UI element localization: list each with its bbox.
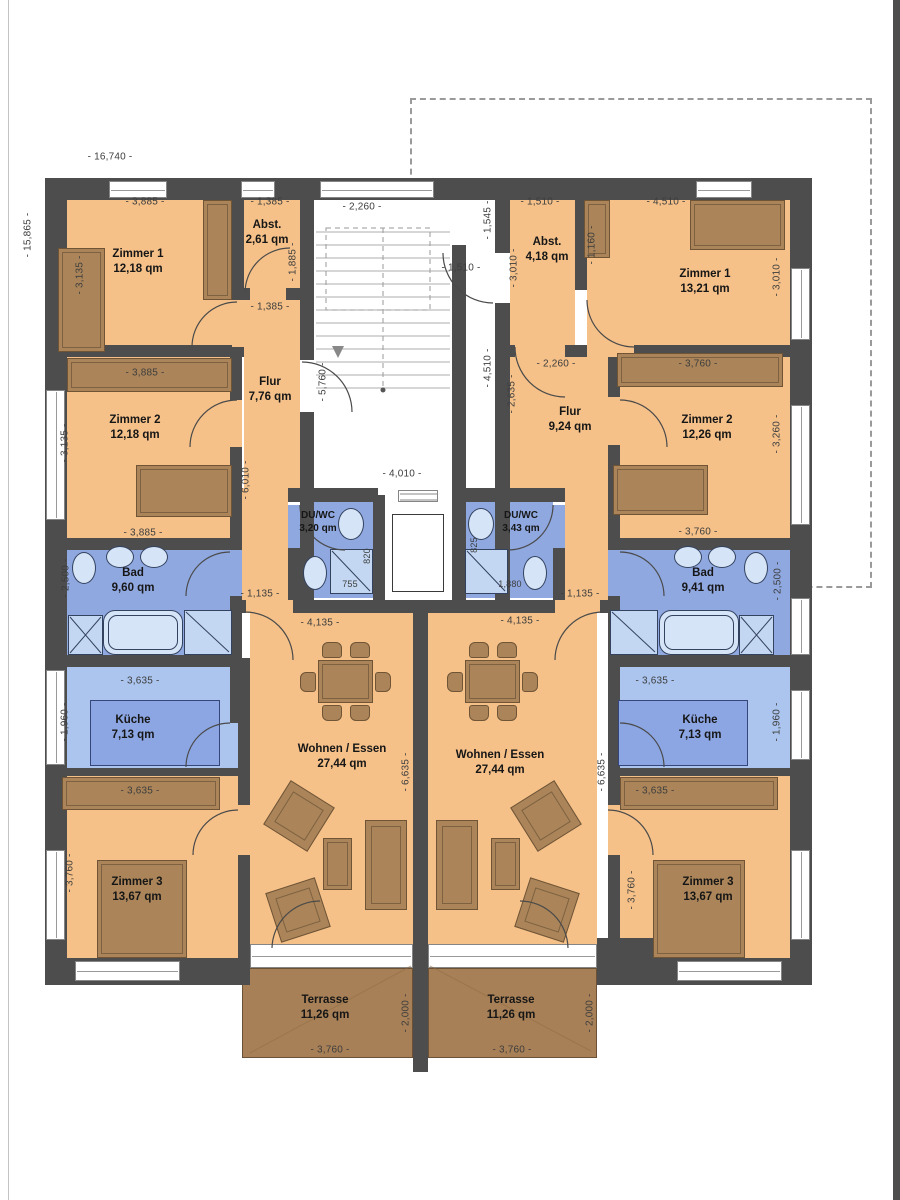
dim-overall-width: - 16,740 - [88,152,133,163]
terrace-door-window [250,944,413,968]
dim: - 1,960 - [60,702,71,741]
dim: - 2,500 - [61,558,72,597]
room-name: Zimmer 2 [109,413,160,428]
dim: - 3,760 - [65,853,76,892]
floor-flur-left-lower [242,488,288,600]
floor-abst-right [510,200,575,345]
wall [620,768,790,776]
door-opening [608,397,620,445]
dining-table [465,660,520,703]
room-name: Terrasse [301,993,350,1008]
room-label-zimmer2-right: Zimmer 212,26 qm [681,413,732,443]
wall [565,345,587,357]
chair [497,642,517,658]
room-area: 11,26 qm [487,1008,536,1023]
room-label-duwc-right: DU/WC3,43 qm [502,509,539,535]
floor-plan-canvas: Zimmer 112,18 qm Abst.2,61 qm Flur7,76 q… [0,0,900,1200]
room-label-terrasse-left: Terrasse11,26 qm [301,993,350,1023]
window [696,181,752,198]
sink [708,546,736,568]
toilet [523,556,547,590]
dim: - 3,885 - [123,528,162,539]
dim: - 6,635 - [401,752,412,791]
dim: - 1,135 - [560,589,599,600]
dim: - 1,385 - [250,302,289,313]
chair [322,642,342,658]
door-opening [230,400,242,447]
room-name: Zimmer 2 [681,413,732,428]
room-area: 27,44 qm [298,757,387,772]
dim: 820 [362,548,372,564]
page-edge-left [8,0,9,1200]
dim-overall-height: - 15,865 - [23,213,34,258]
sofa [436,820,478,910]
room-label-duwc-left: DU/WC3,20 qm [299,509,336,535]
dim: - 4,510 - [646,197,685,208]
dim: - 3,885 - [125,197,164,208]
dim: - 1,960 - [772,702,783,741]
page-edge-right [893,0,900,1200]
sink [106,546,134,568]
wall [293,600,555,613]
window [791,268,810,340]
bed [613,465,708,515]
dim: - 3,760 - [627,870,638,909]
room-label-wohnen-left: Wohnen / Essen27,44 qm [298,742,387,772]
chair [469,642,489,658]
chair [350,642,370,658]
room-area: 13,21 qm [679,282,730,297]
room-name: Bad [112,566,155,581]
chair [522,672,538,692]
room-area: 11,26 qm [301,1008,350,1023]
dim: - 3,010 - [509,248,520,287]
chair [300,672,316,692]
sink [338,508,364,540]
room-name: Abst. [246,218,289,233]
door-opening [288,505,300,548]
room-label-flur-left: Flur7,76 qm [249,375,292,405]
room-name: Zimmer 3 [682,875,733,890]
room-label-terrasse-right: Terrasse11,26 qm [487,993,536,1023]
floor-opening [553,600,600,613]
washing-machine [739,615,774,655]
room-name: Terrasse [487,993,536,1008]
window [791,598,810,655]
dim: - 1,135 - [240,589,279,600]
room-name: DU/WC [299,509,336,522]
chair [350,705,370,721]
room-area: 4,18 qm [526,250,569,265]
wardrobe [203,200,232,300]
dim: - 3,635 - [635,676,674,687]
room-label-zimmer2-left: Zimmer 212,18 qm [109,413,160,443]
dim-stair: - 4,010 - [382,469,421,480]
room-name: Zimmer 3 [111,875,162,890]
wall [608,855,620,940]
room-name: Bad [682,566,725,581]
dim: - 2,635 - [507,374,518,413]
dim: - 3,635 - [120,676,159,687]
dim: 1,880 [498,579,522,589]
chair [447,672,463,692]
wall [238,855,250,940]
dim: - 3,760 - [310,1045,349,1056]
wall [608,538,790,550]
dim: - 3,135 - [60,423,71,462]
sink [468,508,494,540]
dim: - 3,885 - [125,368,164,379]
room-name: Zimmer 1 [679,267,730,282]
room-area: 7,13 qm [112,728,155,743]
wall-elevator [373,495,385,600]
dim: - 6,635 - [597,752,608,791]
dim-stair: - 1,545 - [483,200,494,239]
dim-stair: - 5,760 - [318,362,329,401]
wall-duwc [288,488,378,502]
dim: - 2,000 - [401,993,412,1032]
room-name: Wohnen / Essen [298,742,387,757]
room-label-zimmer1-left: Zimmer 112,18 qm [112,247,163,277]
wall-elevator [453,495,465,600]
window [109,181,167,198]
wall [230,667,242,723]
window [677,961,782,981]
dim: - 3,635 - [120,786,159,797]
bed [690,200,785,250]
room-name: Küche [679,713,722,728]
room-name: Zimmer 1 [112,247,163,262]
room-area: 12,26 qm [681,428,732,443]
room-area: 27,44 qm [456,763,545,778]
dim: 755 [342,579,358,589]
dim: - 4,135 - [500,616,539,627]
sofa [365,820,407,910]
elevator-car [392,514,444,592]
window [46,850,65,940]
room-name: Abst. [526,235,569,250]
room-area: 9,24 qm [549,420,592,435]
window [791,405,810,525]
chair [322,705,342,721]
room-name: Wohnen / Essen [456,748,545,763]
wall-duwc [288,548,300,600]
chair [497,705,517,721]
room-label-kueche-left: Küche7,13 qm [112,713,155,743]
room-area: 12,18 qm [109,428,160,443]
dim: - 3,760 - [492,1045,531,1056]
dim-stair: - 4,510 - [483,348,494,387]
dim: - 4,135 - [300,618,339,629]
dim-stair: - 2,260 - [342,202,381,213]
room-label-zimmer3-right: Zimmer 313,67 qm [682,875,733,905]
wall [597,938,660,962]
room-area: 13,67 qm [682,890,733,905]
wall [510,345,515,357]
dim: - 6,010 - [241,460,252,499]
bathtub [659,610,739,655]
dim: 825 [469,537,479,553]
dim: - 3,635 - [635,786,674,797]
room-area: 7,13 qm [679,728,722,743]
window [241,181,275,198]
terrace-door-window [428,944,597,968]
room-area: 13,67 qm [111,890,162,905]
toilet [744,552,768,584]
coffee-table [491,838,520,890]
wall-duwc [455,488,565,502]
room-label-zimmer3-left: Zimmer 313,67 qm [111,875,162,905]
dim: - 1,385 - [250,197,289,208]
wall [286,288,302,300]
room-label-abst-right: Abst.4,18 qm [526,235,569,265]
washing-machine [68,615,103,655]
wall [232,347,244,357]
window [75,961,180,981]
room-label-flur-right: Flur9,24 qm [549,405,592,435]
dim: - 3,260 - [772,414,783,453]
elevator-door [398,490,438,502]
chair [375,672,391,692]
dim: - 3,760 - [678,527,717,538]
room-area: 2,61 qm [246,233,289,248]
door-opening [608,805,620,855]
kitchen-unit [90,700,220,766]
room-area: 9,60 qm [112,581,155,596]
wall [495,200,510,253]
toilet [303,556,327,590]
room-label-bad-left: Bad9,60 qm [112,566,155,596]
room-area: 7,76 qm [249,390,292,405]
door-opening [232,300,244,347]
dim: - 3,135 - [75,255,86,294]
chair [469,705,489,721]
wall [608,655,790,667]
coffee-table [323,838,352,890]
room-area: 3,43 qm [502,522,539,535]
bed [136,465,232,517]
dim: - 1,885 - [288,242,299,281]
dim: - 1,160 - [587,225,598,264]
room-name: DU/WC [502,509,539,522]
room-name: Flur [549,405,592,420]
room-label-kueche-right: Küche7,13 qm [679,713,722,743]
dim-stair: - 1,510 - [441,263,480,274]
dim: - 2,260 - [536,359,575,370]
wall [232,200,244,300]
room-label-zimmer1-right: Zimmer 113,21 qm [679,267,730,297]
dim: - 2,000 - [585,993,596,1032]
room-label-wohnen-right: Wohnen / Essen27,44 qm [456,748,545,778]
wall [238,938,250,962]
door-opening [238,805,250,855]
shower [184,610,232,655]
dining-table [318,660,373,703]
room-name: Flur [249,375,292,390]
bathtub [103,610,183,655]
dim: - 1,510 - [520,197,559,208]
wall [67,655,242,667]
dim: - 3,010 - [772,257,783,296]
wall [67,768,238,776]
room-name: Küche [112,713,155,728]
window [791,690,810,760]
room-area: 3,20 qm [299,522,336,535]
dim: - 3,760 - [678,359,717,370]
floor-flur-right-lower [565,488,608,600]
door-opening [515,345,565,357]
wall [244,288,250,300]
sink [140,546,168,568]
door-opening [553,505,565,548]
toilet [72,552,96,584]
wall-center [413,600,428,1072]
window [791,850,810,940]
floor-opening [246,600,293,613]
room-label-abst-left: Abst.2,61 qm [246,218,289,248]
dim: - 2,500 - [773,561,784,600]
room-area: 9,41 qm [682,581,725,596]
sink [674,546,702,568]
room-label-bad-right: Bad9,41 qm [682,566,725,596]
stairwell-glazing [320,181,434,198]
shower [610,610,658,655]
room-area: 12,18 qm [112,262,163,277]
wall-stairwell [300,200,314,360]
